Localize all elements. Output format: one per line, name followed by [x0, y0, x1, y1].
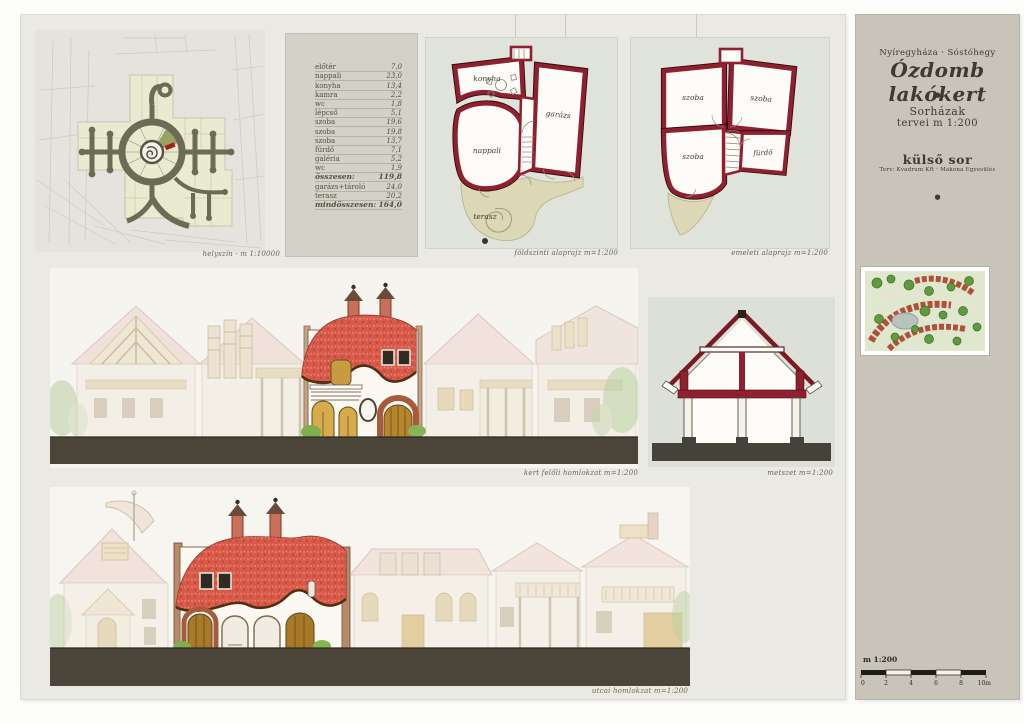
scale-tick: 4	[909, 680, 913, 687]
bullet-icon: ●	[855, 91, 1020, 99]
arched-door	[286, 613, 314, 652]
street-elevation-caption: utcai homlokzat m=1:200	[508, 687, 688, 695]
open-arch	[222, 616, 248, 652]
construction-line	[515, 14, 516, 38]
garden-elevation-drawing	[50, 268, 638, 468]
scale-tick: 6	[934, 680, 938, 687]
table-row: konyha13,4	[315, 81, 402, 90]
site-plan-panel	[35, 30, 265, 252]
section-panel	[648, 297, 835, 467]
table-row: garázs+tároló24,0	[315, 182, 402, 191]
room-label-szoba3: szoba	[682, 152, 704, 161]
balcony-door	[331, 360, 351, 385]
terrace-post	[482, 238, 488, 244]
ground-floor-plan-panel: konyha garázs nappali terasz	[425, 37, 618, 249]
construction-line	[696, 14, 697, 38]
open-arch	[254, 616, 280, 652]
construction-line	[565, 14, 566, 38]
presentation-board-page: helyszín · m 1:10000 előtér7,0 nappali23…	[0, 0, 1024, 724]
room-label-furdo: fürdő	[752, 147, 773, 157]
aerial-rendering-thumbnail	[861, 267, 989, 355]
scale-bar: 0 2 4 6 8 10m	[860, 668, 992, 688]
arched-door	[188, 614, 212, 652]
walls	[664, 49, 794, 197]
design-credits: Terv: Kvadrum Kft · Makona Egyesülés	[855, 167, 1020, 173]
room-label-nappali: nappali	[473, 146, 502, 155]
street-elevation-drawing	[50, 487, 690, 686]
upper-floor-plan-drawing: szoba szoba szoba fürdő	[630, 37, 830, 249]
scale-tick: 2	[884, 680, 888, 687]
scale-bar-label: m 1:200	[863, 655, 897, 664]
area-table: előtér7,0 nappali23,0 konyha13,4 kamra2,…	[315, 63, 402, 210]
project-location: Nyíregyháza · Sóstóhegy	[855, 48, 1020, 58]
roof-window	[200, 573, 213, 589]
table-row: lépcső5,1	[315, 109, 402, 118]
table-row: szoba13,7	[315, 137, 402, 146]
table-row: kamra2,2	[315, 91, 402, 100]
garden-elevation-caption: kert felőli homlokzat m=1:200	[458, 469, 638, 477]
ground-strip	[50, 437, 638, 464]
table-row: galéria5,2	[315, 155, 402, 164]
ground-floor-caption: földszinti alaprajz m=1:200	[478, 249, 618, 257]
room-label-konyha: konyha	[473, 74, 500, 83]
table-row: szoba19,6	[315, 118, 402, 127]
oval-window	[360, 399, 376, 421]
series-title: Sorházak	[855, 105, 1020, 118]
table-row-subtotal: összesen:119,8	[315, 173, 402, 182]
room-label-szoba1: szoba	[682, 93, 704, 102]
title-block-sheet: Nyíregyháza · Sóstóhegy Ózdomb lakókert …	[855, 14, 1020, 700]
table-row: előtér7,0	[315, 63, 402, 72]
scale-tick: 8	[959, 680, 963, 687]
table-row: fürdő7,1	[315, 146, 402, 155]
scale-tick: 10m	[978, 680, 992, 687]
shrub	[408, 425, 426, 437]
series-scale: tervei m 1:200	[855, 118, 1020, 129]
room-label-szoba2: szoba	[750, 93, 772, 104]
table-row: wc1,8	[315, 100, 402, 109]
faded-house-c	[350, 549, 492, 652]
room-label-terasz: terasz	[473, 212, 496, 221]
scale-tick: 0	[861, 680, 865, 687]
section-caption: metszet m=1:200	[713, 469, 833, 477]
bullet-icon: ●	[855, 193, 1020, 201]
site-plan-caption: helyszín · m 1:10000	[180, 250, 280, 258]
table-row-grand-total: mindösszesen:164,0	[315, 201, 402, 210]
roof-window	[382, 350, 394, 365]
roof-window	[398, 350, 410, 365]
upper-floor-plan-panel: szoba szoba szoba fürdő	[630, 37, 830, 249]
upper-floor-caption: emeleti alaprajz m=1:200	[688, 249, 828, 257]
aerial-rendering-drawing	[865, 271, 985, 351]
ground-strip	[50, 648, 690, 686]
main-drawing-sheet: helyszín · m 1:10000 előtér7,0 nappali23…	[20, 14, 846, 700]
roof-window	[218, 573, 231, 589]
row-name: külső sor	[855, 152, 1020, 167]
garden-elevation-panel	[50, 268, 638, 468]
site-plan-drawing	[35, 30, 265, 252]
section-drawing	[648, 297, 835, 467]
table-row: szoba19,8	[315, 127, 402, 136]
street-elevation-panel	[50, 487, 690, 686]
table-row: nappali23,0	[315, 72, 402, 81]
roof-vent	[308, 581, 315, 597]
ground-floor-plan-drawing: konyha garázs nappali terasz	[425, 37, 618, 249]
